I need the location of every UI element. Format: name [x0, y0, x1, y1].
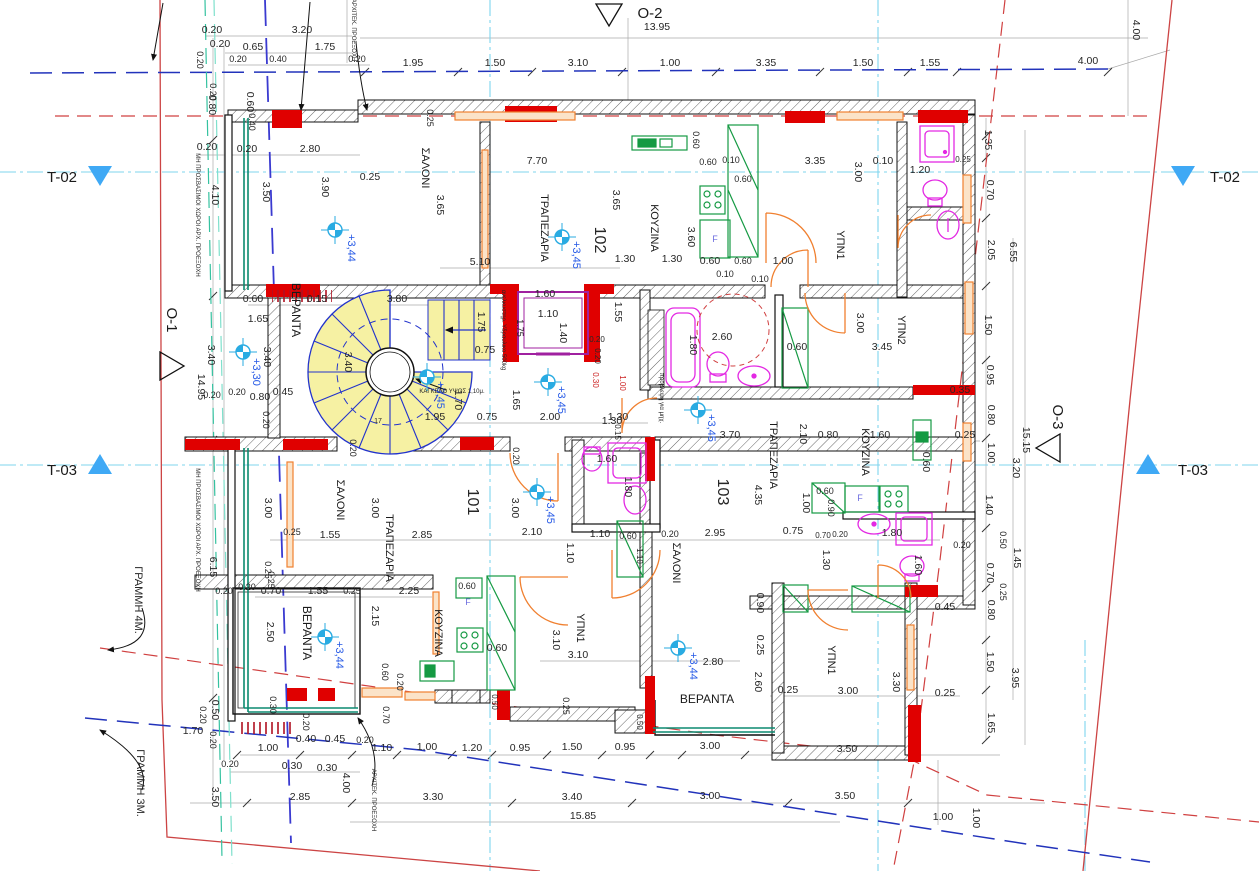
room-label: ΥΠΝ1: [574, 613, 586, 642]
t02-right-triangle-icon: [1171, 166, 1195, 186]
dim-label: 1.95: [425, 411, 446, 423]
dim-label: 3.00: [838, 685, 859, 697]
dim-label: 0.15: [307, 293, 328, 305]
room-label: ΥΠΝ1: [834, 230, 846, 259]
dim-label: 0.80: [206, 95, 218, 116]
elevation-label: +3,45: [544, 496, 556, 524]
dim-label: 0.45: [273, 386, 294, 398]
appliance-label: F: [712, 234, 718, 244]
dim-label: 1.30: [615, 253, 636, 265]
dim-label: 3.10: [568, 57, 589, 69]
dim-label: 2.95: [705, 527, 726, 539]
dim-label: 3.40: [562, 791, 583, 803]
dim-label: 0.20: [237, 143, 258, 155]
elevation-label: +3,30: [250, 358, 262, 386]
dim-label: 0.20: [198, 706, 208, 724]
apartment-number: 103: [714, 479, 731, 506]
apartment-number: 102: [591, 227, 608, 254]
note-label: ΜΗ ΠΡΟΣΒΑΣΙΜΟΙ ΧΩΡΟΙ ΑΡΧ. ΠΡΟΕΞΟΧΗ: [194, 468, 200, 592]
dim-label: 1.70: [452, 390, 464, 411]
columns-layer: [185, 106, 975, 762]
dim-label: 1.00: [258, 742, 279, 754]
marker-t02-right-label: T-02: [1210, 169, 1240, 186]
dim-label: 2.80: [703, 656, 724, 668]
dim-label: 0.75: [783, 525, 804, 537]
spiral-staircase: [308, 290, 490, 454]
room-label: ΚΟΥΖΙΝΑ: [432, 609, 444, 657]
setback-line-label: ΓΡΑΜΜΗ 3Μ.: [134, 749, 146, 817]
dim-label: 3.65: [434, 195, 446, 216]
dim-label: 1.75: [475, 312, 487, 333]
dim-label: 0.20: [395, 673, 405, 691]
dim-label: 3.35: [756, 57, 777, 69]
dim-label: 1.40: [557, 323, 569, 344]
dim-label: 0.20: [197, 141, 218, 153]
appliance-label: F: [465, 597, 471, 607]
dim-label: 0.20: [215, 586, 233, 596]
dim-label: 0.25: [561, 697, 571, 715]
dim-label: 0.25: [998, 583, 1008, 601]
dim-label: 0.25: [360, 171, 381, 183]
dim-label: 0.60: [380, 663, 390, 681]
dim-label: 1.30: [820, 550, 832, 571]
dim-label: 2.25: [399, 585, 420, 597]
dim-label: 2.60: [712, 331, 733, 343]
dim-label: 0.70: [815, 531, 831, 540]
dim-label: 0.95: [510, 742, 531, 754]
room-label: ΒΕΡΑΝΤΑ: [289, 283, 303, 337]
dim-label: 0.20: [221, 759, 239, 769]
dim-label: 0.25: [425, 109, 435, 127]
dim-label: 1.10: [564, 543, 576, 564]
dim-label: 0.70: [261, 585, 282, 597]
dim-label: 1.65: [985, 713, 997, 734]
dim-label: 2.85: [412, 529, 433, 541]
dim-label: 0.10: [873, 155, 894, 167]
dim-label: 0.80: [818, 429, 839, 441]
dim-label: 3.00: [700, 740, 721, 752]
dim-label: 0.20: [208, 731, 218, 749]
dim-label: 3.30: [890, 672, 902, 693]
dim-label: 1.35: [982, 130, 994, 151]
dim-label: 1.75: [515, 319, 525, 337]
dim-label: 1.20: [462, 742, 483, 754]
dim-label: 17: [374, 418, 382, 425]
dim-label: 0.90: [826, 499, 836, 517]
dim-label: 4.10: [209, 185, 221, 206]
dim-label: 6.55: [1007, 242, 1019, 263]
dim-label: 0.95: [984, 365, 996, 386]
dim-label: 0.80: [985, 405, 997, 426]
dim-label: 1.00: [618, 375, 627, 391]
elevation-label: +3,44: [345, 234, 357, 262]
room-label: ΤΡΑΠΕΖΑΡΙΑ: [383, 514, 395, 582]
dim-label: 2.10: [797, 424, 809, 445]
dim-label: 0.35: [950, 384, 971, 396]
dim-label: 3.00: [852, 162, 864, 183]
elevation-label: +3,45: [434, 381, 446, 409]
dim-label: 0.25: [263, 561, 273, 579]
dim-label: 0.40: [296, 733, 317, 745]
dim-label: 3.95: [1009, 668, 1021, 689]
dim-label: 0.95: [615, 741, 636, 753]
dim-label: 1.00: [660, 57, 681, 69]
dim-label: 0.25: [955, 155, 971, 164]
dim-label: 0.25: [778, 684, 799, 696]
dim-label: 0.20: [661, 529, 679, 539]
dim-label: 0.70: [984, 563, 996, 584]
dim-label: 15.15: [1020, 427, 1032, 453]
dim-label: 3.50: [209, 787, 221, 808]
dim-label: 6.15: [207, 557, 219, 578]
dim-label: 0.60: [487, 642, 508, 654]
dim-label: 0.30: [317, 762, 338, 774]
marker-o1-label: O-1: [163, 307, 180, 332]
dim-label: 1.55: [920, 57, 941, 69]
dim-label: 0.25: [283, 527, 301, 537]
room-label: ΚΟΥΖΙΝΑ: [648, 204, 660, 252]
dim-label: 3.10: [550, 630, 562, 651]
dim-label: 1.00: [800, 493, 812, 514]
dim-label: 0.20: [832, 530, 848, 539]
dim-label: 0.20: [202, 24, 223, 36]
dim-label: 0.45: [325, 733, 346, 745]
note-label: ΑΡΧΙΤΕΚ. ΠΡΟΕΞΟΧΗ: [370, 769, 376, 832]
dim-label: 0.75: [475, 344, 496, 356]
dim-label: 1.80: [687, 335, 699, 356]
room-label: ΥΠΝ2: [895, 315, 907, 344]
dim-label: 0.20: [593, 348, 602, 364]
marker-o3-label: O-3: [1049, 404, 1066, 429]
dim-label: 1.60: [535, 288, 556, 300]
dim-label: 1.00: [773, 255, 794, 267]
elevator: [518, 292, 588, 354]
dim-label: 1.20: [910, 164, 931, 176]
dim-label: 0.65: [243, 41, 264, 53]
dim-label: 1.75: [315, 41, 336, 53]
floor-plan-page: O-2 O-1 O-3 T-02 T-02 T-03 T-03 0.203.20…: [0, 0, 1259, 871]
dim-label: 0.25: [955, 429, 976, 441]
dim-label: 1.30: [662, 253, 683, 265]
dim-label: 2.80: [300, 143, 321, 155]
dim-label: 1.80: [622, 477, 634, 498]
dim-label: 1.00: [417, 741, 438, 753]
dim-label: 1.00: [970, 808, 982, 829]
dim-label: 0.20: [589, 335, 605, 344]
dim-label: 1.60: [870, 429, 891, 441]
dim-label: 3.30: [423, 791, 444, 803]
dim-label: 0.60: [699, 157, 717, 167]
dim-label: 3.40: [205, 345, 217, 366]
floor-plan-canvas: O-2 O-1 O-3 T-02 T-02 T-03 T-03 0.203.20…: [0, 0, 1259, 871]
dim-label: 0.30: [591, 372, 600, 388]
dim-label: 1.50: [853, 57, 874, 69]
dim-label: 15.85: [570, 810, 596, 822]
dim-label: 2.85: [290, 791, 311, 803]
dim-label: 3.60: [685, 227, 697, 248]
dim-label: 3.40: [342, 352, 354, 373]
dim-label: 3.20: [292, 24, 313, 36]
dim-label: 3.00: [854, 313, 866, 334]
dim-label: 1.00: [933, 811, 954, 823]
dim-label: 0.40: [269, 54, 287, 64]
dim-label: 2.60: [752, 672, 764, 693]
dim-label: 0.20: [301, 713, 311, 731]
room-label: ΣΑΛΟΝΙ: [334, 480, 346, 521]
dim-label: 3.45: [872, 341, 893, 353]
elevation-label: +3,45: [555, 386, 567, 414]
dim-label: 0.20: [229, 54, 247, 64]
dim-label: 1.70: [183, 725, 204, 737]
marker-t03-right-label: T-03: [1178, 462, 1208, 479]
dim-label: 0.90: [754, 593, 766, 614]
note-label: προβλεψη για μηχ.: [658, 373, 664, 424]
dim-label: 0.20: [195, 51, 205, 69]
dim-label: 2.00: [540, 411, 561, 423]
note-label: ΜΗ ΠΡΟΣΒΑΣΙΜΟΙ ΧΩΡΟΙ ΑΡΧ. ΠΡΟΕΞΟΧΗ: [194, 153, 200, 277]
room-label: ΤΡΑΠΕΖΑΡΙΑ: [767, 421, 779, 489]
dim-label: 0.30: [268, 696, 278, 714]
dim-label: 0.60: [244, 92, 256, 113]
t02-left-triangle-icon: [88, 166, 112, 186]
dim-label: 3.65: [610, 190, 622, 211]
room-label: ΤΡΑΠΕΖΑΡΙΑ: [538, 194, 550, 262]
dim-label: 0.60: [691, 131, 701, 149]
t03-right-triangle-icon: [1136, 454, 1160, 474]
dim-label: 4.00: [340, 773, 352, 794]
dim-label: 3.50: [260, 182, 272, 203]
dim-label: 3.00: [509, 498, 521, 519]
dim-label: 1.30: [602, 415, 623, 427]
dim-label: 1.50: [982, 315, 994, 336]
dim-label: 0.20: [953, 540, 971, 550]
dim-label: 0.10: [751, 274, 769, 284]
dim-label: 0.60: [243, 293, 264, 305]
dim-label: 1.10: [635, 548, 644, 564]
dim-label: 2.15: [369, 606, 381, 627]
dim-label: 1.55: [320, 529, 341, 541]
appliance-label: F: [857, 493, 863, 503]
dim-label: 1.80: [882, 527, 903, 539]
dim-label: 3.80: [387, 293, 408, 305]
dim-label: 0.60: [734, 174, 752, 184]
dim-label: 3.35: [805, 155, 826, 167]
room-label: ΣΑΛΟΝΙ: [670, 543, 682, 584]
dim-label: 1.50: [984, 652, 996, 673]
dim-label: 0.20: [261, 411, 271, 429]
dim-label: 2.50: [264, 622, 276, 643]
dim-label: 1.50: [562, 741, 583, 753]
dim-label: 0.60: [458, 581, 476, 591]
dim-label: 0.60: [920, 452, 932, 473]
dim-label: 3.50: [835, 790, 856, 802]
dim-label: 3.90: [319, 177, 331, 198]
dim-label: 0.20: [238, 582, 256, 592]
dim-label: 1.45: [1011, 548, 1023, 569]
dim-label: 4.00: [1130, 20, 1142, 41]
dim-label: 3.70: [720, 429, 741, 441]
marker-t03-left-label: T-03: [47, 462, 77, 479]
note-label: ανελκυστηρ. Υδραυλικο 500kg: [500, 290, 506, 371]
t03-left-triangle-icon: [88, 454, 112, 474]
note-label: ΑΡΧΙΤΕΚ. ΠΡΟΕΞΟΧΗ: [350, 0, 356, 61]
door-swing-clearance: [697, 294, 769, 366]
dim-label: 0.10: [716, 269, 734, 279]
dim-label: 0.20: [348, 439, 358, 457]
dim-label: 0.75: [477, 411, 498, 423]
dim-label: 0.25: [935, 687, 956, 699]
dim-label: 0.45: [935, 601, 956, 613]
room-label: ΥΠΝ1: [825, 645, 837, 674]
dim-label: 0.60: [700, 255, 721, 267]
dim-label: 1.65: [510, 390, 522, 411]
dim-label: 0.25: [754, 635, 766, 656]
dim-label: 1.55: [308, 585, 329, 597]
dim-label: 0.50: [635, 714, 644, 730]
elevation-label: +3,44: [333, 641, 345, 669]
dim-label: 0.40: [247, 113, 257, 131]
room-label: ΒΕΡΑΝΤΑ: [680, 692, 734, 706]
dim-label: 1.10: [372, 742, 393, 754]
dim-label: 0.60: [734, 256, 752, 266]
dim-label: 3.20: [1010, 458, 1022, 479]
elevation-label: +3,44: [687, 652, 699, 680]
dim-label: 0.30: [282, 760, 303, 772]
dim-label: 0.60: [787, 341, 808, 353]
dim-label: 1.50: [485, 57, 506, 69]
dim-label: 0.80: [985, 600, 997, 621]
o3-triangle-icon: [1036, 434, 1060, 462]
marker-t02-left-label: T-02: [47, 169, 77, 186]
room-label: ΣΑΛΟΝΙ: [419, 148, 431, 189]
dim-label: 2.10: [522, 526, 543, 538]
dim-label: 5.10: [470, 256, 491, 268]
dim-label: 7.70: [527, 155, 548, 167]
dim-label: 0.20: [210, 38, 231, 50]
dim-label: 1.40: [983, 495, 995, 516]
setback-line-label: ΓΡΑΜΜΗ 4Μ.: [132, 566, 144, 634]
dim-label: 1.60: [912, 555, 924, 576]
elevation-marker-icon: [321, 216, 349, 244]
dim-label: 3.00: [700, 790, 721, 802]
dim-label: 3.00: [262, 498, 274, 519]
dim-label: 1.10: [538, 308, 559, 320]
dim-label: 0.25: [343, 586, 361, 596]
elevation-label: +3,45: [705, 414, 717, 442]
dim-label: 1.95: [403, 57, 424, 69]
dim-label: 0.50: [209, 700, 221, 721]
dim-label: 2.05: [985, 240, 997, 261]
dim-label: 4.00: [1078, 55, 1099, 67]
o1-triangle-icon: [160, 352, 184, 380]
dim-label: 3.00: [369, 498, 381, 519]
dim-label: 1.60: [597, 453, 618, 465]
dim-label: 1.65: [248, 313, 269, 325]
dim-label: 0.50: [998, 531, 1008, 549]
dim-label: 0.70: [984, 180, 996, 201]
dim-label: 0.20: [511, 447, 521, 465]
elevation-label: +3,45: [570, 241, 582, 269]
dim-label: 4.35: [752, 485, 764, 506]
o2-triangle-icon: [596, 4, 622, 26]
dim-label: 3.50: [837, 743, 858, 755]
dim-label: 13.95: [644, 21, 670, 33]
dim-label: 0.60: [816, 486, 834, 496]
apartment-number: 101: [464, 489, 481, 516]
marker-o2-label: O-2: [637, 5, 662, 22]
dim-label: 0.70: [381, 706, 391, 724]
dim-label: 1.55: [612, 302, 624, 323]
dim-label: 1.10: [590, 528, 611, 540]
dim-label: 0.10: [722, 155, 740, 165]
dim-label: 0.20: [228, 387, 246, 397]
dim-label: 0.80: [250, 391, 271, 403]
dim-label: 1.00: [985, 443, 997, 464]
room-label: ΒΕΡΑΝΤΑ: [300, 606, 314, 660]
dim-label: 0.20: [203, 390, 221, 400]
dim-label: 3.10: [568, 649, 589, 661]
dim-label: 0.50: [490, 694, 499, 710]
dim-label: 0.60: [619, 531, 637, 541]
